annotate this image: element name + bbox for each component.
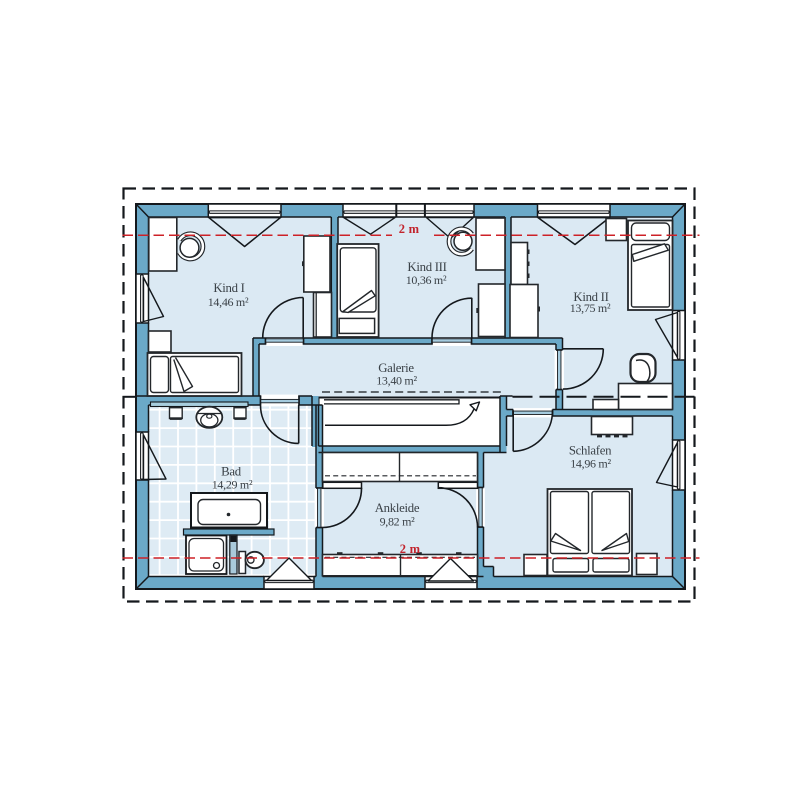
svg-text:Bad: Bad: [221, 464, 242, 478]
svg-text:14,96 m²: 14,96 m²: [570, 457, 611, 471]
svg-text:14,29 m²: 14,29 m²: [212, 477, 253, 491]
svg-text:Kind III: Kind III: [407, 260, 446, 274]
svg-text:14,46 m²: 14,46 m²: [208, 295, 249, 309]
svg-text:13,75 m²: 13,75 m²: [570, 301, 611, 315]
svg-text:9,82 m²: 9,82 m²: [380, 515, 416, 529]
svg-text:13,40 m²: 13,40 m²: [376, 374, 417, 388]
svg-text:Ankleide: Ankleide: [375, 501, 420, 515]
svg-text:2 m: 2 m: [400, 542, 421, 556]
svg-text:Kind I: Kind I: [213, 281, 244, 295]
svg-text:2 m: 2 m: [399, 222, 420, 236]
svg-text:10,36 m²: 10,36 m²: [406, 273, 447, 287]
